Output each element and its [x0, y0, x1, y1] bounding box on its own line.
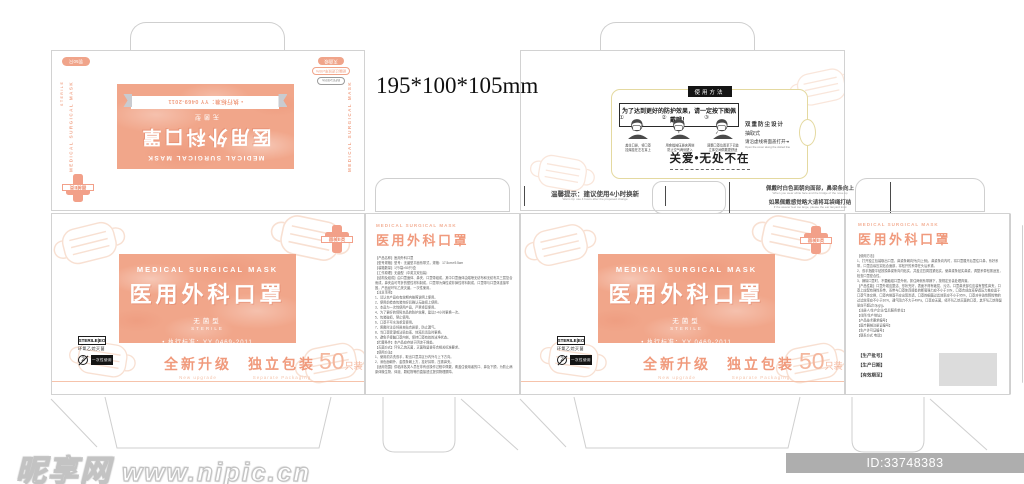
back-title-en: MEDICAL SURGICAL MASK	[376, 223, 469, 228]
lid-panel-left: MEDICAL SURGICAL MASK MEDICAL SURGICAL M…	[51, 50, 365, 211]
packing-en: Separate Packaging	[727, 375, 795, 380]
back-info-panel-right: MEDICAL SURGICAL MASK 医用外科口罩 【使用方法】 1、打开…	[845, 213, 1010, 395]
upgrade-en: New upgrade	[164, 375, 232, 380]
bfe-badge: BFE≥95%	[317, 77, 345, 85]
lid-badge-pills: BFE≥95% 细菌过滤效率≥95% 灭菌级	[306, 57, 356, 85]
step-number: ②	[662, 115, 667, 121]
warm-tip-en: Warm tip: use 4 hours after the proposed…	[563, 198, 628, 201]
upgrade-cn: 全新升级	[643, 354, 711, 374]
side-note-3: 请沿虚线将面盖打开↠	[745, 139, 805, 145]
do-not-reuse-icon: 2	[78, 355, 88, 365]
dieline-tuck-tab-right	[600, 22, 755, 50]
standard-text: • 执行标准：YY 0469-2011	[168, 99, 243, 107]
figure-mask-icon	[667, 118, 693, 139]
back-panel-header: MEDICAL SURGICAL MASK 医用外科口罩	[376, 223, 469, 249]
sterile-type-label: 无菌型	[598, 315, 775, 325]
watermark-site-name: 昵享网	[16, 455, 112, 484]
upgrade-slogan: 全新升级 New upgrade	[643, 354, 711, 380]
lid-brand-label: MEDICAL SURGICAL MASK 医用外科口罩 无菌型 • 执行标准：…	[117, 84, 294, 169]
usage-instructions-panel: 使用方法 为了达到更好的防护效果，请一定按下图佩戴哦！ ① 盖住口鼻，将口罩 挂…	[611, 89, 808, 179]
back-title-cn: 医用外科口罩	[376, 230, 469, 249]
sterile-type-label: 无菌型	[119, 315, 296, 325]
print-fold-line	[52, 381, 364, 382]
lid-rotated-content: MEDICAL SURGICAL MASK MEDICAL SURGICAL M…	[52, 51, 364, 210]
wearing-tip-en-1: When you wear white face and the bridge …	[773, 192, 848, 195]
dieline-tuck-tab-left	[130, 22, 285, 50]
watermark-logo: 昵享网www.nipic.cn	[16, 446, 311, 484]
sterile-type-label: 无菌型	[117, 113, 294, 122]
step-number: ①	[619, 115, 624, 121]
figure-mask-icon	[625, 118, 651, 139]
pack-count: 50只装	[799, 348, 843, 375]
box-size-label: 195*100*105mm	[376, 73, 538, 99]
print-fold-line	[521, 381, 844, 382]
single-use-icon: 一次性使用	[570, 355, 592, 365]
batch-print-area	[939, 353, 997, 386]
back-title-cn: 医用外科口罩	[858, 229, 951, 248]
dieline-tuck-tongue-right	[652, 181, 726, 214]
device-class-cross-icon: 器械Ⅱ类	[66, 172, 90, 202]
single-use-icon: 一次性使用	[91, 355, 113, 365]
upgrade-en: New upgrade	[643, 375, 711, 380]
standard-text: • 执行标准：YY 0469-2011	[598, 337, 775, 346]
device-class-badge: 器械Ⅱ类	[800, 237, 832, 244]
brand-title-cn: 医用外科口罩	[598, 277, 775, 309]
image-id-bar: ID:33748383 NO:20221227144932385102	[786, 453, 1024, 473]
pack-count-unit: 只装	[825, 361, 843, 371]
packing-slogan: 独立包装 Separate Packaging	[727, 354, 795, 380]
packaging-dieline-canvas: MEDICAL SURGICAL MASK MEDICAL SURGICAL M…	[0, 0, 1024, 484]
warm-tip-cn: 温馨提示：建议使用4小时换新	[530, 188, 660, 198]
lid-side-flap-text-right: MEDICAL SURGICAL MASK STERILE	[60, 76, 73, 172]
ribbon-tail-right	[124, 94, 133, 107]
product-info-text: 【产品名称】医用外科口罩 【型号规格】型号：无菌型平面系带式，规格：17.5cm…	[375, 256, 515, 375]
pack-count-number: 50	[319, 348, 345, 374]
device-class-cross-icon: 器械Ⅱ类	[325, 225, 349, 255]
brand-title-en: MEDICAL SURGICAL MASK	[117, 154, 294, 169]
brand-title-en: MEDICAL SURGICAL MASK	[598, 254, 775, 274]
front-panel-left: 器械Ⅱ类 MEDICAL SURGICAL MASK 医用外科口罩 无菌型 ST…	[51, 213, 365, 395]
upgrade-cn: 全新升级	[164, 354, 232, 374]
pack-count-number: 50	[799, 348, 825, 374]
device-class-badge: 器械Ⅱ类	[321, 236, 353, 243]
device-class-badge: 器械Ⅱ类	[62, 184, 94, 191]
care-slogan: 关爱•无处不在	[612, 150, 807, 166]
figure-mask-icon	[710, 118, 736, 139]
standard-ribbon: • 执行标准：YY 0469-2011	[132, 96, 280, 109]
device-class-cross-icon: 器械Ⅱ类	[804, 226, 828, 256]
packing-cn: 独立包装	[248, 354, 316, 374]
filtration-badge: 细菌过滤效率≥95%	[312, 67, 350, 75]
brand-title-cn: 医用外科口罩	[119, 277, 296, 309]
packing-en: Separate Packaging	[248, 375, 316, 380]
front-brand-label: MEDICAL SURGICAL MASK 医用外科口罩 无菌型 STERILE…	[119, 254, 296, 343]
slogan-dashed-underline	[670, 169, 750, 170]
do-not-reuse-icon: 2	[557, 355, 567, 365]
back-text-clip: 【使用方法】 1、打开独立包装取出口罩，鼻梁条朝向外(向上侧)，鼻梁条向内时，将…	[857, 254, 1003, 348]
pack-count-unit: 只装	[345, 361, 363, 371]
packing-slogan: 独立包装 Separate Packaging	[248, 354, 316, 380]
dieline-dust-flap-right	[855, 178, 985, 212]
back-text-clip: 【产品名称】医用外科口罩 【型号规格】型号：无菌型平面系带式，规格：17.5cm…	[375, 256, 515, 391]
side-note-en: Open the cover along the dotted line	[745, 146, 775, 149]
sterilization-icon-group: STERILE|EO 环氧乙烷灭菌 2 一次性使用	[78, 336, 124, 365]
side-flap-sterile-text: STERILE	[60, 81, 64, 106]
wearing-tip-en-2: If the wearer feel too large, please the…	[773, 206, 848, 209]
brand-title-cn: 医用外科口罩	[117, 125, 294, 152]
product-info-text: 【使用方法】 1、打开独立包装取出口罩，鼻梁条朝向外(向上侧)，鼻梁条向内时，将…	[857, 254, 1003, 338]
pack-count: 50只装	[319, 348, 363, 375]
sterilization-icon-group: STERILE|EO 环氧乙烷灭菌 2 一次性使用	[557, 336, 603, 365]
upgrade-slogan-row: 全新升级 New upgrade 独立包装 Separate Packaging	[164, 354, 316, 380]
dieline-dust-flap-left	[375, 178, 510, 212]
ribbon-tail-left	[279, 94, 288, 107]
sterile-eo-caption: 环氧乙烷灭菌	[78, 346, 124, 352]
side-note-1: 双重防尘设计	[745, 120, 805, 128]
back-title-en: MEDICAL SURGICAL MASK	[858, 222, 951, 227]
watermark-site-url: www.nipic.cn	[122, 457, 311, 484]
back-panel-header: MEDICAL SURGICAL MASK 医用外科口罩	[858, 222, 951, 248]
side-note-2: 抽取式	[745, 130, 805, 137]
batch-fields-block: 【生产批号】 【生产日期】 【有效期至】	[858, 351, 928, 393]
standard-text: • 执行标准：YY 0469-2011	[119, 337, 296, 346]
sterile-en-label: STERILE	[598, 326, 775, 331]
lid-side-flap-text-left: MEDICAL SURGICAL MASK	[347, 76, 352, 172]
dieline-glue-flap	[1010, 213, 1023, 395]
upgrade-slogan: 全新升级 New upgrade	[164, 354, 232, 380]
warm-tip-block: 温馨提示：建议使用4小时换新 Warm tip: use 4 hours aft…	[524, 186, 666, 206]
batch-fields-text: 【生产批号】 【生产日期】 【有效期至】	[858, 351, 928, 380]
side-flap-text: MEDICAL SURGICAL MASK	[347, 81, 352, 172]
sterile-grade-badge: 灭菌级	[318, 57, 344, 65]
brand-title-en: MEDICAL SURGICAL MASK	[119, 254, 296, 274]
sterile-eo-icon: STERILE|EO	[557, 336, 585, 345]
back-info-panel-left: MEDICAL SURGICAL MASK 医用外科口罩 【产品名称】医用外科口…	[365, 213, 520, 395]
upgrade-slogan-row: 全新升级 New upgrade 独立包装 Separate Packaging	[643, 354, 795, 380]
usage-side-note: 双重防尘设计 抽取式 请沿虚线将面盖打开↠ Open the cover alo…	[745, 120, 805, 152]
usage-tab-label: 使用方法	[687, 86, 731, 97]
front-brand-label: MEDICAL SURGICAL MASK 医用外科口罩 无菌型 STERILE…	[598, 254, 775, 343]
front-panel-right: 器械Ⅱ类 MEDICAL SURGICAL MASK 医用外科口罩 无菌型 ST…	[520, 213, 845, 395]
sterile-en-label: STERILE	[119, 326, 296, 331]
side-flap-text: MEDICAL SURGICAL MASK	[68, 81, 73, 172]
sterile-eo-caption: 环氧乙烷灭菌	[557, 346, 603, 352]
sterile-eo-icon: STERILE|EO	[78, 336, 106, 345]
pack-count-badge: 装50只	[62, 57, 90, 66]
packing-cn: 独立包装	[727, 354, 795, 374]
step-number: ③	[704, 115, 709, 121]
